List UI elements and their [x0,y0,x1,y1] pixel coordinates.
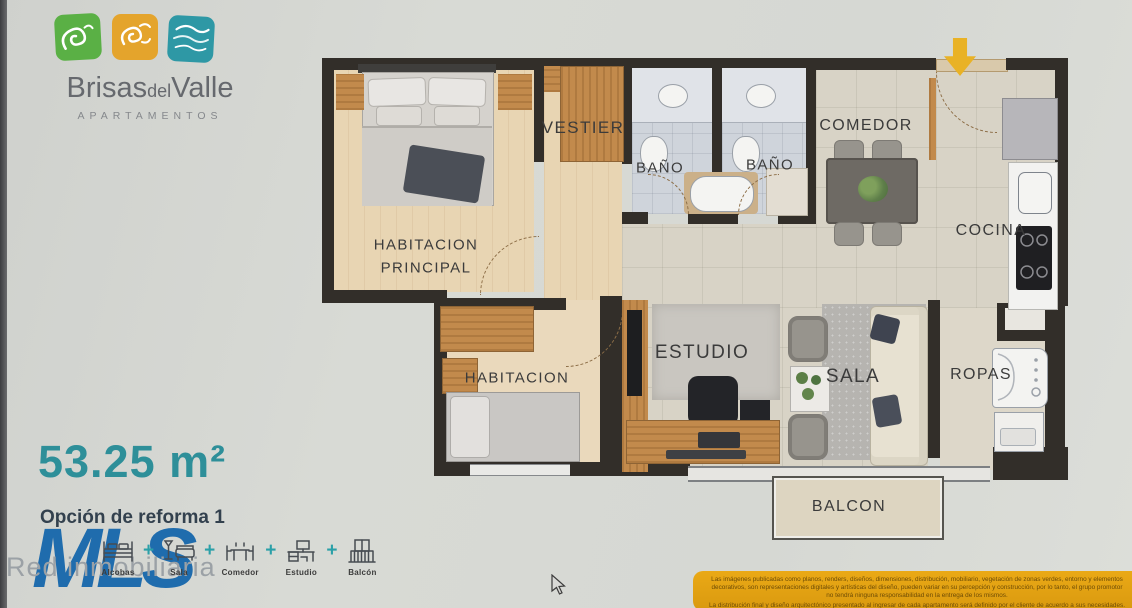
legend-label: Sala [170,568,188,577]
plus-separator: + [265,540,276,562]
legend-row: Alcobas + Sala + Comedor + [95,538,385,577]
room-label-habitacion-principal-line2: PRINCIPAL [381,260,472,277]
plus-separator: + [143,540,154,562]
master-pillow2-right [434,106,480,126]
desk-mat [666,450,746,459]
legend-item-alcobas: Alcobas [95,538,141,577]
balcony-icon [344,538,380,566]
mouse-cursor [550,574,568,596]
room-label-comedor: COMEDOR [819,117,912,135]
room-label-sala: SALA [826,366,880,388]
room-label-ropas: ROPAS [950,366,1012,384]
bath1-sink [658,84,688,108]
option-label: Opción de reforma 1 [40,507,225,529]
bedroom2-closet [440,306,534,352]
disclaimer-line: Las imágenes publicadas como planos, ren… [707,576,1127,584]
master-pillow-right [428,77,487,107]
legend-item-comedor: Comedor [217,538,263,577]
sofa-pillow-2 [872,394,903,428]
coffee-table-plants [790,366,828,410]
disclaimer-line: decorativos, son representaciones digita… [707,584,1127,592]
room-label-habitacion: HABITACION [465,370,570,387]
legend-label: Balcón [348,568,376,577]
master-pillow-left [368,77,427,107]
hall-floor [622,224,816,308]
fridge [1002,98,1058,160]
desk-icon [283,538,319,566]
wall-living-ropas [928,300,940,458]
dining-chair-3 [834,222,864,246]
plus-separator: + [326,540,337,562]
dining-table-icon [222,538,258,566]
wall-bath-bottom-a [622,212,648,224]
kitchen-sink [1018,172,1052,214]
vestier-closet [560,66,624,162]
legend-label: Estudio [286,568,317,577]
disclaimer-bar: Las imágenes publicadas como planos, ren… [693,571,1132,608]
bedroom2-pillow [450,396,490,458]
legend-item-balcon: Balcón [339,538,385,577]
legend-label: Comedor [222,568,259,577]
disclaimer-line: La distribución final y diseño arquitect… [707,602,1127,608]
room-label-balcon: BALCON [812,498,886,516]
dining-centerpiece-plant [858,176,888,202]
desk-laptop [698,432,740,448]
dining-chair-4 [872,222,902,246]
nightstand-right [498,74,532,110]
bed-icon [100,538,136,566]
room-label-bano-1: BAÑO [636,160,684,177]
bedroom2-window [470,464,570,476]
legend-label: Alcobas [101,568,134,577]
office-chair [688,376,738,426]
bath2-sink [746,84,776,108]
armchair-2 [788,414,828,460]
vestier-shelf [544,66,560,92]
tv [627,310,642,396]
armchair-1 [788,316,828,362]
ropas-top-notch [1005,308,1047,330]
room-label-estudio: ESTUDIO [655,342,749,364]
disclaimer-line: no tendrá ninguna responsabilidad en la … [707,592,1127,600]
room-label-bano-2: BAÑO [746,157,794,174]
sofa-icon [161,538,197,566]
entry-door-leaf [929,78,936,160]
master-pillow2-left [376,106,422,126]
laundry-sink-basin [1000,428,1036,446]
nightstand-left [336,74,364,110]
wall-master-vestier [534,68,544,162]
wall-left [322,58,334,302]
legend-item-estudio: Estudio [278,538,324,577]
wall-master-bottom [322,290,446,303]
room-label-cocina: COCINA [956,222,1027,240]
plus-separator: + [204,540,215,562]
legend-item-sala: Sala [156,538,202,577]
room-label-vestier: VESTIER [542,118,625,138]
room-label-habitacion-principal-line1: HABITACION [374,237,479,254]
area-value: 53.25 m² [38,436,226,488]
floorplan-sheet-photo: BrisasdelValle APARTAMENTOS [0,0,1132,608]
